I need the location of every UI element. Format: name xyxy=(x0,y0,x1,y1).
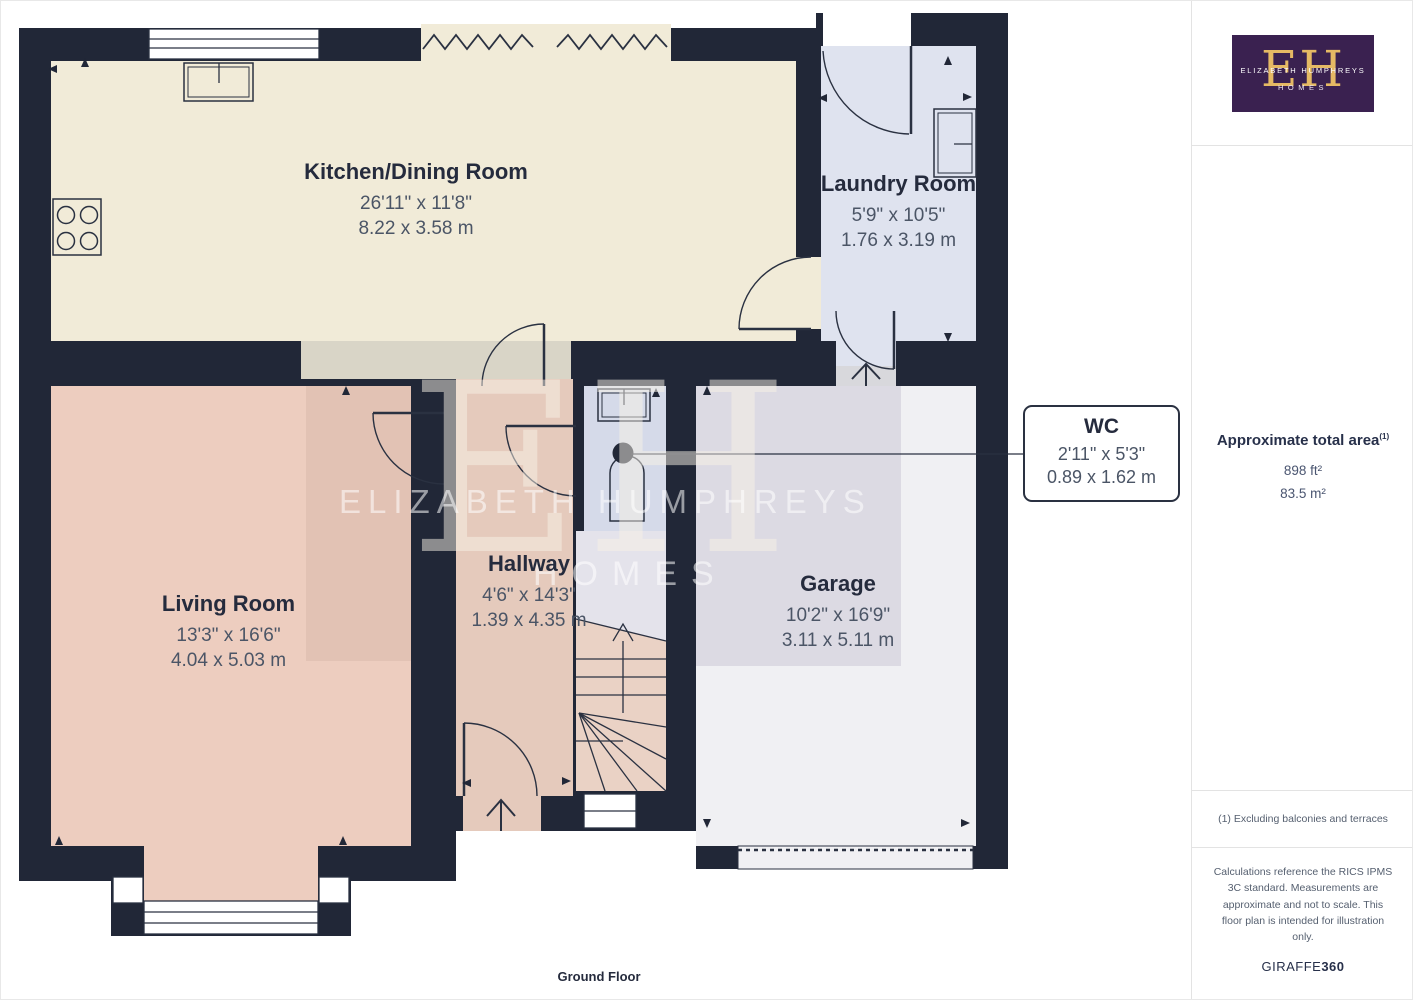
bay-right-window xyxy=(319,877,349,903)
kitchen-lower-strip xyxy=(301,341,571,379)
total-area-title-text: Approximate total area xyxy=(1217,432,1380,449)
total-area-imperial: 898 ft² xyxy=(1284,463,1322,478)
wc-callout: WC 2'11" x 5'3" 0.89 x 1.62 m xyxy=(1023,405,1180,502)
room-dims-imperial: 13'3" x 16'6" xyxy=(96,623,361,648)
stove-icon xyxy=(53,199,101,255)
room-dims-imperial: 2'11" x 5'3" xyxy=(1029,443,1174,466)
footnote-text: (1) Excluding balconies and terraces xyxy=(1218,813,1388,825)
logo-section: EH ELIZABETH HUMPHREYS HOMES xyxy=(1192,1,1413,146)
room-name: Garage xyxy=(738,571,938,597)
room-label-garage: Garage 10'2" x 16'9" 3.11 x 5.11 m xyxy=(738,571,938,653)
bay-front-window xyxy=(144,901,318,934)
room-label-hallway: Hallway 4'6" x 14'3" 1.39 x 4.35 m xyxy=(439,551,619,633)
room-dims-metric: 1.39 x 4.35 m xyxy=(439,608,619,633)
total-area-metric: 83.5 m² xyxy=(1280,486,1326,501)
room-name: Living Room xyxy=(96,591,361,617)
floor-title: Ground Floor xyxy=(449,969,749,984)
total-area-section: Approximate total area(1) 898 ft² 83.5 m… xyxy=(1192,146,1413,791)
brand-suffix: 360 xyxy=(1321,959,1344,974)
room-dims-metric: 1.76 x 3.19 m xyxy=(806,228,991,253)
floor-plan-drawing xyxy=(1,1,1191,1000)
room-name: Hallway xyxy=(439,551,619,577)
floorplan-page: EH ELIZABETH HUMPHREYS HOMES Kitchen/Din… xyxy=(0,0,1413,1000)
room-label-laundry: Laundry Room 5'9" x 10'5" 1.76 x 3.19 m xyxy=(806,171,991,253)
logo-name: ELIZABETH HUMPHREYS xyxy=(1232,66,1374,75)
info-sidebar: EH ELIZABETH HUMPHREYS HOMES Approximate… xyxy=(1191,1,1413,1000)
room-dims-metric: 8.22 x 3.58 m xyxy=(271,216,561,241)
washer-icon xyxy=(934,109,976,177)
bay-left-window xyxy=(113,877,143,903)
room-name: Kitchen/Dining Room xyxy=(271,159,561,185)
room-name: WC xyxy=(1029,415,1174,439)
disclaimer-section: Calculations reference the RICS IPMS 3C … xyxy=(1192,848,1413,1000)
brand-logo: EH ELIZABETH HUMPHREYS HOMES xyxy=(1232,35,1374,112)
giraffe360-brand: GIRAFFE360 xyxy=(1261,959,1344,974)
room-dims-imperial: 26'11" x 11'8" xyxy=(271,191,561,216)
room-dims-imperial: 4'6" x 14'3" xyxy=(439,583,619,608)
kitchen-sink-icon xyxy=(184,63,253,101)
room-dims-metric: 0.89 x 1.62 m xyxy=(1029,466,1174,489)
logo-subtitle: HOMES xyxy=(1232,83,1374,92)
footnote-section: (1) Excluding balconies and terraces xyxy=(1192,791,1413,848)
room-dims-metric: 3.11 x 5.11 m xyxy=(738,628,938,653)
total-area-title: Approximate total area(1) xyxy=(1217,432,1389,449)
kitchen-window xyxy=(149,29,319,59)
bay-floor xyxy=(144,846,318,901)
floor-plan-area: EH ELIZABETH HUMPHREYS HOMES Kitchen/Din… xyxy=(1,1,1191,1000)
room-dims-imperial: 5'9" x 10'5" xyxy=(806,203,991,228)
wc-sink-icon xyxy=(598,389,650,421)
room-name: Laundry Room xyxy=(806,171,991,197)
brand-name: GIRAFFE xyxy=(1261,959,1321,974)
room-label-living: Living Room 13'3" x 16'6" 4.04 x 5.03 m xyxy=(96,591,361,673)
room-label-kitchen-dining: Kitchen/Dining Room 26'11" x 11'8" 8.22 … xyxy=(271,159,561,241)
room-dims-imperial: 10'2" x 16'9" xyxy=(738,603,938,628)
total-area-footnote-ref: (1) xyxy=(1379,432,1389,441)
disclaimer-text: Calculations reference the RICS IPMS 3C … xyxy=(1212,864,1394,945)
room-dims-metric: 4.04 x 5.03 m xyxy=(96,648,361,673)
